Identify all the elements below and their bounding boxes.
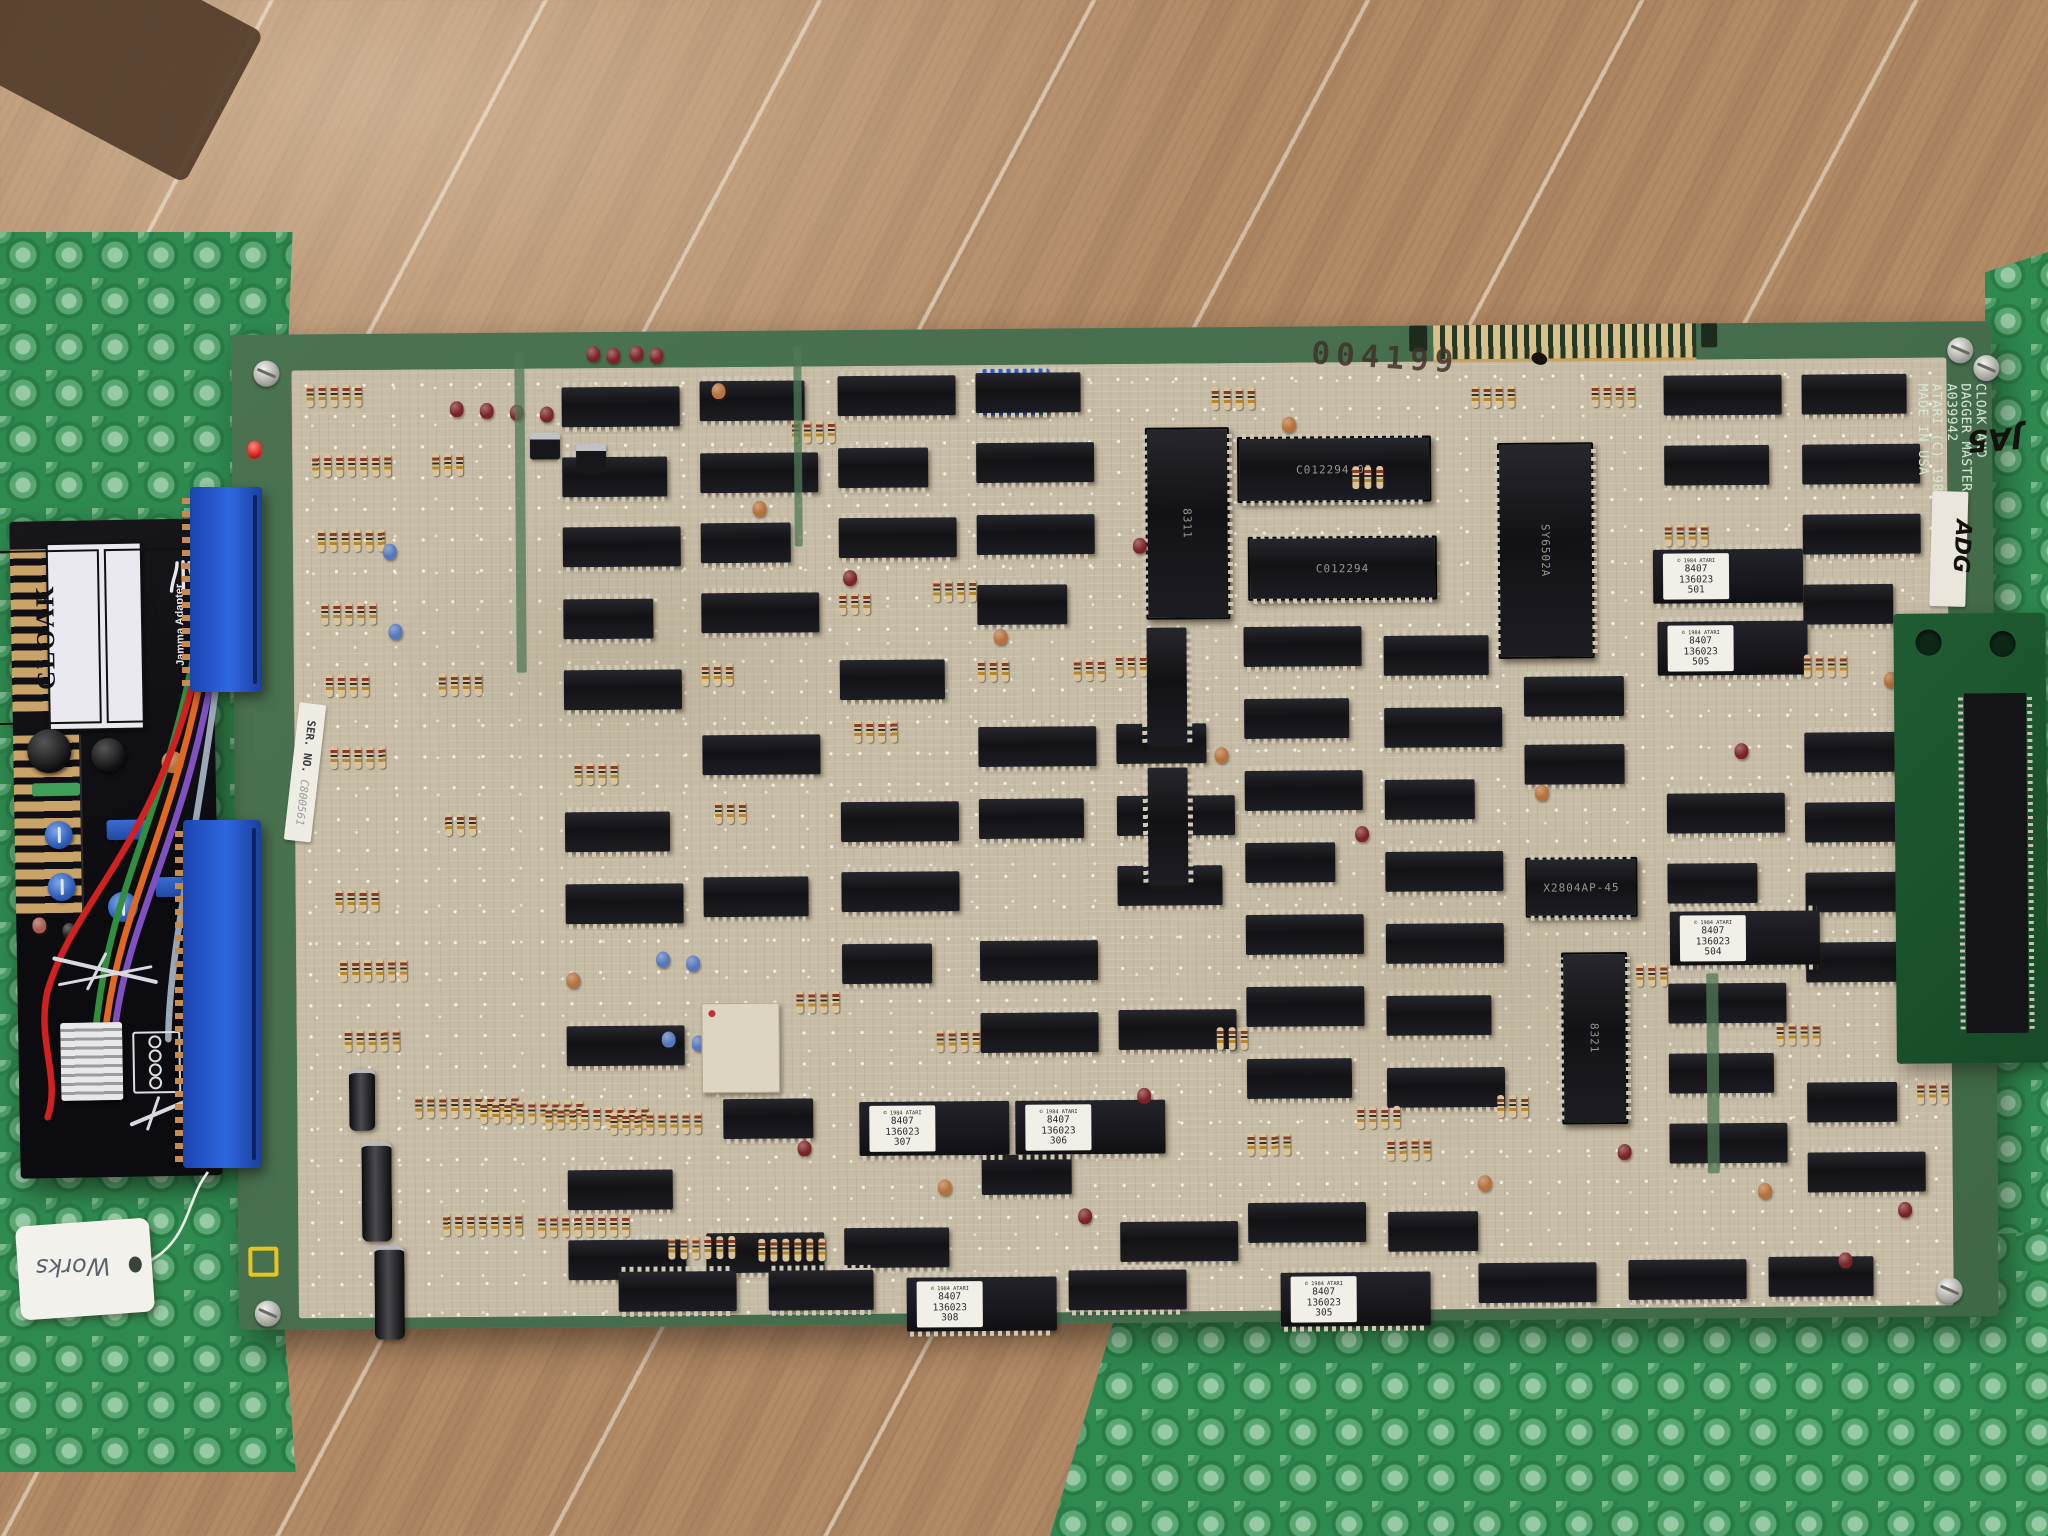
resistor — [820, 990, 827, 1013]
ic-chip — [702, 734, 820, 775]
ic-chip — [840, 659, 945, 700]
resistor — [318, 529, 325, 552]
eprom-label-line: 308 — [941, 1313, 958, 1324]
resistor — [1484, 385, 1491, 408]
resistor — [668, 1236, 675, 1259]
chip-marking: 8321 — [1510, 1007, 1678, 1070]
resistor — [1472, 385, 1479, 408]
ic-chip — [564, 669, 682, 710]
eprom-label: © 1984 ATARI8407136023307 — [869, 1105, 935, 1152]
resistor-cluster — [1777, 1022, 1820, 1045]
ic-chip — [839, 517, 957, 558]
resistor — [354, 529, 361, 552]
ic-chip — [1246, 914, 1364, 955]
resistor — [610, 762, 617, 785]
resistor-cluster — [978, 659, 1009, 682]
resistor — [1941, 1081, 1948, 1104]
resistor — [1789, 1023, 1796, 1046]
ic-chip — [701, 523, 791, 564]
resistor — [360, 454, 367, 477]
resistor — [362, 674, 369, 697]
resistor — [384, 454, 391, 477]
resistor — [702, 663, 709, 686]
resistor-cluster — [1212, 387, 1255, 410]
resistor — [1497, 1095, 1504, 1118]
resistor — [354, 746, 361, 769]
resistor — [990, 659, 997, 682]
resistor — [1399, 1138, 1406, 1161]
resistor — [330, 529, 337, 552]
eprom-label-line: 505 — [1692, 657, 1709, 668]
resistor — [682, 1111, 689, 1134]
resistor — [1116, 654, 1123, 677]
resistor — [439, 673, 446, 696]
resistor — [973, 1029, 980, 1052]
resistor-cluster — [345, 1029, 400, 1052]
ic-chip — [1524, 744, 1624, 785]
resistor — [806, 1238, 813, 1261]
ic-chip — [979, 798, 1084, 839]
ic-chip — [1667, 863, 1757, 904]
resistor — [528, 1101, 535, 1124]
resistor — [427, 1095, 434, 1118]
resistor-cluster — [1116, 654, 1147, 677]
disc-capacitor — [540, 406, 554, 422]
resistor — [1801, 1023, 1808, 1046]
ic-chip — [1669, 1123, 1787, 1164]
resistor — [1241, 1027, 1248, 1050]
disc-capacitor — [388, 624, 402, 640]
resistor — [432, 453, 439, 476]
ic-chip — [768, 1270, 873, 1311]
resistor-cluster — [1917, 1081, 1948, 1104]
resistor — [1813, 1022, 1820, 1045]
resistor-cluster — [330, 746, 385, 769]
resistor — [1393, 1106, 1400, 1129]
ic-chip — [701, 592, 819, 633]
ic-chip — [1669, 1053, 1774, 1094]
ic-chip — [1807, 1082, 1897, 1123]
ic-chip — [1803, 514, 1921, 555]
resistor-cluster — [758, 1238, 825, 1262]
disc-capacitor — [1734, 743, 1748, 759]
resistor — [739, 801, 746, 824]
resistor — [1648, 964, 1655, 987]
resistor — [340, 959, 347, 982]
resistor — [574, 1214, 581, 1237]
resistor-cluster — [1804, 654, 1847, 677]
disc-capacitor — [566, 972, 580, 988]
resistor — [1929, 1082, 1936, 1105]
resistor — [342, 746, 349, 769]
eprom-chip: © 1984 ATARI8407136023504 — [1670, 910, 1820, 965]
ic-chip — [1388, 1211, 1478, 1252]
resistor — [1423, 1138, 1430, 1161]
resistor — [569, 1106, 576, 1129]
resistor — [1660, 964, 1667, 987]
resistor-cluster — [1497, 1095, 1528, 1118]
resistor — [1074, 658, 1081, 681]
resistor — [475, 673, 482, 696]
resistor — [622, 1214, 629, 1237]
chip-marking: SY6502A — [1439, 504, 1652, 598]
resistor-cluster — [1352, 466, 1383, 489]
tag-text: Works — [36, 1252, 111, 1281]
resistor — [1236, 387, 1243, 410]
resistor — [1376, 466, 1383, 489]
resistor-cluster — [1665, 523, 1708, 546]
ic-chip — [1120, 1221, 1238, 1262]
resistor — [469, 813, 476, 836]
resistor — [716, 1236, 723, 1259]
ic-chip — [841, 871, 959, 912]
resistor — [808, 990, 815, 1013]
eprom-label: © 1984 ATARI8407136023504 — [1680, 915, 1746, 962]
resistor — [345, 1029, 352, 1052]
ic-chip — [1387, 1067, 1505, 1108]
large-ic-chip-vertical: 8311 — [1145, 427, 1231, 620]
resistor — [1128, 654, 1135, 677]
ic-chip — [1803, 584, 1893, 625]
resistor — [357, 602, 364, 625]
ic-chip — [975, 372, 1080, 413]
resistor-cluster — [312, 454, 391, 478]
resistor — [1636, 964, 1643, 987]
resistor — [491, 1213, 498, 1236]
eprom-chip: © 1984 ATARI8407136023307 — [859, 1101, 1009, 1156]
resistor — [443, 1213, 450, 1236]
resistor — [371, 889, 378, 912]
transistor — [576, 444, 606, 471]
resistor-cluster — [1636, 964, 1667, 987]
eprom-label: © 1984 ATARI8407136023501 — [1663, 553, 1729, 600]
resistor — [586, 1214, 593, 1237]
disc-capacitor — [712, 383, 726, 399]
transistor — [530, 432, 560, 459]
resistor-cluster — [854, 720, 897, 743]
oscillator-module — [701, 1003, 780, 1094]
resistor-cluster — [432, 453, 463, 476]
ic-chip — [978, 726, 1096, 767]
ic-chip — [1244, 698, 1349, 739]
ic-chip — [842, 943, 932, 984]
resistor — [574, 762, 581, 785]
resistor — [538, 1214, 545, 1237]
resistor — [321, 602, 328, 625]
disc-capacitor — [1758, 1183, 1772, 1199]
ic-chip — [1245, 770, 1363, 811]
resistor — [1804, 655, 1811, 678]
resistor — [366, 746, 373, 769]
solder-mask-sliver — [1706, 973, 1720, 1173]
resistor — [451, 1095, 458, 1118]
resistor — [338, 674, 345, 697]
eprom-label: © 1984 ATARI8407136023305 — [1291, 1276, 1357, 1323]
eprom-label-line: © 1984 ATARI — [1682, 630, 1720, 636]
ic-chip — [1246, 986, 1364, 1027]
resistor — [1247, 1133, 1254, 1156]
resistor — [1628, 384, 1635, 407]
resistor-cluster — [1247, 1133, 1290, 1156]
ic-chip — [723, 1098, 813, 1139]
resistor — [330, 746, 337, 769]
adg-label: ADG — [1929, 491, 1968, 607]
resistor — [515, 1213, 522, 1236]
ic-chip — [1068, 1269, 1186, 1310]
resistor — [794, 1238, 801, 1261]
eprom-label-line: 501 — [1688, 585, 1705, 596]
resistor — [1387, 1138, 1394, 1161]
resistor — [345, 602, 352, 625]
resistor — [457, 813, 464, 836]
resistor — [1098, 658, 1105, 681]
resistor — [1828, 654, 1835, 677]
resistor — [680, 1236, 687, 1259]
resistor — [816, 420, 823, 443]
resistor — [364, 959, 371, 982]
resistor — [1689, 523, 1696, 546]
resistor — [610, 1214, 617, 1237]
ic-chip — [568, 1169, 673, 1210]
resistor — [378, 746, 385, 769]
eprom-label-line: 306 — [1050, 1136, 1067, 1147]
resistor — [839, 592, 846, 615]
handwritten-ja5: JA5 — [1966, 419, 2024, 458]
resistor — [312, 454, 319, 477]
resistor — [366, 529, 373, 552]
resistor — [866, 720, 873, 743]
resistor-cluster — [668, 1236, 735, 1260]
resistor — [342, 529, 349, 552]
ic-chip — [1385, 851, 1503, 892]
resistor — [1369, 1106, 1376, 1129]
resistor — [969, 579, 976, 602]
disc-capacitor — [1214, 747, 1228, 763]
ic-chip — [565, 883, 683, 924]
eprom-chip: © 1984 ATARI8407136023305 — [1281, 1272, 1431, 1327]
resistor — [463, 1095, 470, 1118]
ic-chip — [565, 811, 670, 852]
ic-chip — [1386, 995, 1491, 1036]
resistor-cluster — [839, 592, 870, 615]
resistor — [949, 1029, 956, 1052]
resistor — [347, 889, 354, 912]
resistor — [319, 384, 326, 407]
ic-chip — [837, 375, 955, 416]
resistor — [796, 990, 803, 1013]
disc-capacitor — [752, 501, 766, 517]
resistor — [516, 1101, 523, 1124]
resistor — [854, 720, 861, 743]
resistor — [692, 1236, 699, 1259]
resistor — [1140, 654, 1147, 677]
resistor — [593, 1106, 600, 1129]
ic-chip — [977, 584, 1067, 625]
resistor — [646, 1112, 653, 1135]
disc-capacitor — [686, 955, 700, 971]
resistor — [562, 1214, 569, 1237]
resistor — [957, 579, 964, 602]
pcb-board: 004199 12345678 C012294-03C012294X2804AP… — [231, 321, 1999, 1330]
ic-chip — [1384, 707, 1502, 748]
resistor — [1604, 384, 1611, 407]
resistor — [444, 453, 451, 476]
disc-capacitor — [797, 1140, 811, 1156]
resistor — [694, 1111, 701, 1134]
disc-capacitor — [1838, 1252, 1852, 1268]
resistor — [782, 1239, 789, 1262]
disc-capacitor — [1078, 1208, 1092, 1224]
resistor — [1212, 387, 1219, 410]
resistor — [1352, 466, 1359, 489]
ic-chip — [1664, 445, 1769, 486]
resistor — [467, 1213, 474, 1236]
electrolytic-capacitor — [361, 1142, 392, 1242]
disc-capacitor — [606, 348, 620, 364]
resistor — [598, 1214, 605, 1237]
resistor — [343, 384, 350, 407]
large-ic-chip-vertical: SY6502A — [1497, 442, 1595, 659]
resistor-cluster — [1387, 1138, 1430, 1161]
disc-capacitor — [993, 629, 1007, 645]
resistor — [307, 384, 314, 407]
disc-capacitor — [383, 544, 397, 560]
resistor — [658, 1112, 665, 1135]
resistor — [1229, 1027, 1236, 1050]
ic-chip — [1668, 983, 1786, 1024]
ic-chip — [1478, 1262, 1596, 1303]
ic-chip — [980, 940, 1098, 981]
resistor — [1701, 523, 1708, 546]
resistor-cluster — [318, 529, 385, 553]
resistor — [1777, 1023, 1784, 1046]
ic-chip — [1663, 375, 1781, 416]
resistor — [851, 592, 858, 615]
resistor — [933, 579, 940, 602]
resistor — [1509, 1095, 1516, 1118]
electrolytic-capacitor — [374, 1246, 405, 1340]
resistor — [1616, 384, 1623, 407]
eprom-label-line: © 1984 ATARI — [883, 1110, 921, 1116]
ic-chip — [1628, 1259, 1746, 1300]
resistor — [878, 720, 885, 743]
component-layer: C012294-03C012294X2804AP-45SY6502A831183… — [231, 321, 1999, 1330]
resistor — [550, 1214, 557, 1237]
eprom-label-line: © 1984 ATARI — [931, 1286, 969, 1292]
resistor — [1521, 1095, 1528, 1118]
resistor — [451, 673, 458, 696]
mounting-hole — [1990, 631, 2016, 657]
resistor-cluster — [321, 602, 376, 625]
resistor — [557, 1106, 564, 1129]
resistor — [598, 762, 605, 785]
resistor — [333, 602, 340, 625]
corner-screw — [1973, 355, 1999, 381]
ic-chip — [1384, 635, 1489, 676]
resistor — [961, 1029, 968, 1052]
resistor — [586, 762, 593, 785]
ic-chip — [1667, 793, 1785, 834]
tag-hole — [128, 1256, 142, 1273]
resistor — [945, 579, 952, 602]
resistor — [714, 663, 721, 686]
photo-scene: { "scene": {"description": "Atari Cloak … — [0, 0, 2048, 1536]
resistor — [331, 384, 338, 407]
resistor — [1917, 1082, 1924, 1105]
eprom-label-line: 307 — [894, 1138, 911, 1149]
resistor — [545, 1106, 552, 1129]
resistor — [445, 813, 452, 836]
handwritten-adg: ADG — [1947, 519, 1975, 574]
eprom-label-line: 305 — [1315, 1308, 1332, 1319]
resistor-cluster — [1592, 384, 1635, 407]
resistor-cluster — [610, 1111, 701, 1135]
eprom-label: © 1984 ATARI8407136023308 — [917, 1281, 983, 1328]
electrolytic-capacitor — [349, 1069, 375, 1131]
ic-chip — [1802, 444, 1920, 485]
resistor — [727, 801, 734, 824]
eprom-label-line: © 1984 ATARI — [1677, 558, 1715, 564]
resistor — [381, 1029, 388, 1052]
resistor — [1259, 1133, 1266, 1156]
resistor — [728, 1236, 735, 1259]
ic-chip — [976, 442, 1094, 483]
resistor — [1271, 1133, 1278, 1156]
resistor — [1592, 384, 1599, 407]
resistor-cluster — [937, 1029, 980, 1052]
disc-capacitor — [1133, 538, 1147, 554]
resistor — [479, 1213, 486, 1236]
resistor — [359, 889, 366, 912]
chip-marking: X2804AP-45 — [1527, 859, 1635, 916]
ic-chip — [1801, 374, 1906, 415]
resistor — [622, 1112, 629, 1135]
eprom-chip: © 1984 ATARI8407136023308 — [907, 1276, 1057, 1331]
resistor-cluster — [326, 674, 369, 697]
resistor — [352, 959, 359, 982]
corner-screw — [1947, 337, 1973, 363]
resistor — [504, 1101, 511, 1124]
resistor — [388, 959, 395, 982]
disc-capacitor — [629, 346, 643, 362]
resistor-cluster — [1472, 385, 1515, 408]
resistor — [456, 453, 463, 476]
disc-capacitor — [1355, 826, 1369, 842]
disc-capacitor — [1137, 1088, 1151, 1104]
ic-chip — [977, 514, 1095, 555]
eprom-label-line: © 1984 ATARI — [1039, 1109, 1077, 1115]
resistor — [1508, 385, 1515, 408]
resistor — [503, 1213, 510, 1236]
resistor — [978, 659, 985, 682]
ic-chip — [1768, 1256, 1873, 1297]
resistor — [818, 1238, 825, 1261]
resistor — [355, 384, 362, 407]
resistor-cluster — [443, 1213, 522, 1237]
ic-chip — [1247, 1058, 1352, 1099]
disc-capacitor — [1898, 1202, 1912, 1218]
resistor — [1086, 658, 1093, 681]
resistor — [492, 1101, 499, 1124]
resistor — [455, 1213, 462, 1236]
ic-chip — [1243, 626, 1361, 667]
resistor — [357, 1029, 364, 1052]
resistor — [1217, 1027, 1224, 1050]
disc-capacitor — [450, 401, 464, 417]
resistor — [415, 1095, 422, 1118]
disc-capacitor — [1618, 1144, 1632, 1160]
resistor — [1816, 654, 1823, 677]
